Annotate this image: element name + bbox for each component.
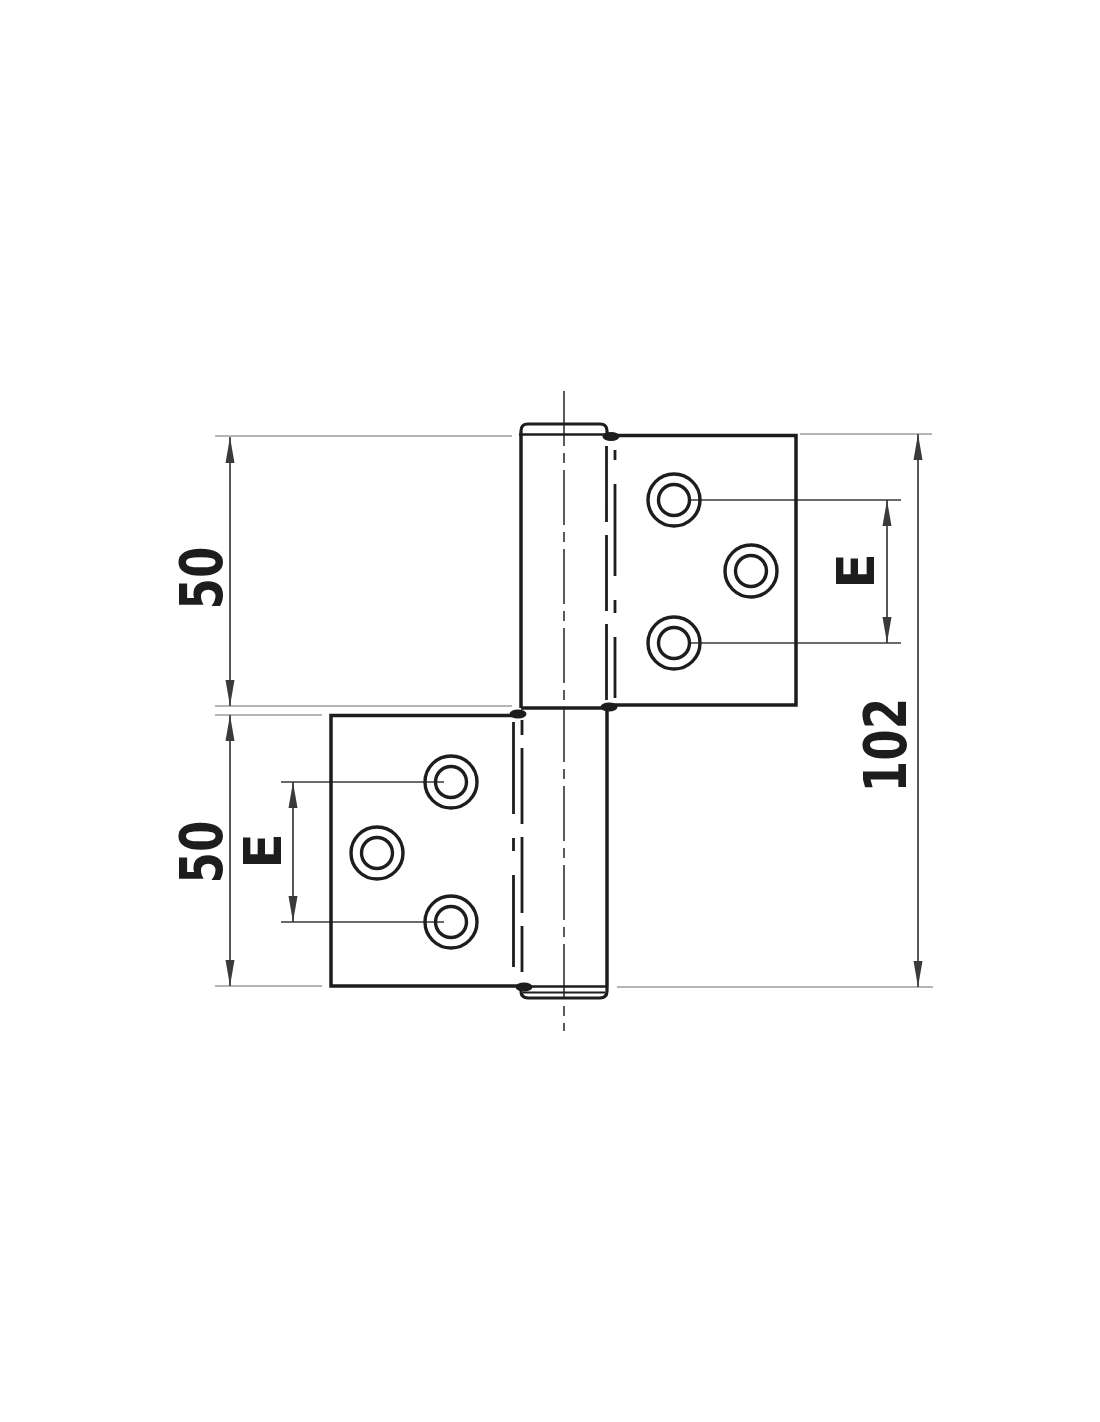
extension-lines [215,434,933,987]
lower-knuckle [519,708,607,998]
lower-leaf-holes [351,756,477,948]
joint-dot [510,710,527,719]
joint-dot [516,983,533,992]
hole-leader-lines [281,500,901,922]
arrow-up-icon [883,500,892,526]
arrow-up-icon [226,715,235,741]
screw-hole [351,827,403,879]
arrow-down-icon [883,617,892,643]
lower-hole-spacing-label: E [233,833,293,869]
overall-height-label: 102 [853,698,920,792]
lower-leaf-outline [331,716,521,987]
upper-leaf-holes [648,474,777,669]
arrow-down-icon [914,961,923,987]
arrow-up-icon [226,437,235,463]
arrow-down-icon [226,960,235,986]
hinge-drawing: 50 50 102 E E [0,0,1100,1422]
technical-drawing-canvas: 50 50 102 E E [0,0,1100,1422]
arrow-up-icon [914,434,923,460]
arrow-down-icon [226,680,235,706]
upper-hole-spacing-label: E [826,553,886,589]
arrow-down-icon [289,896,298,922]
lower-leaf [331,716,522,987]
joint-dot [603,432,620,441]
screw-hole [725,545,777,597]
arrow-up-icon [289,782,298,808]
joint-dot [601,703,618,712]
upper-leaf-height-label: 50 [169,547,236,610]
lower-leaf-height-label: 50 [169,821,236,884]
